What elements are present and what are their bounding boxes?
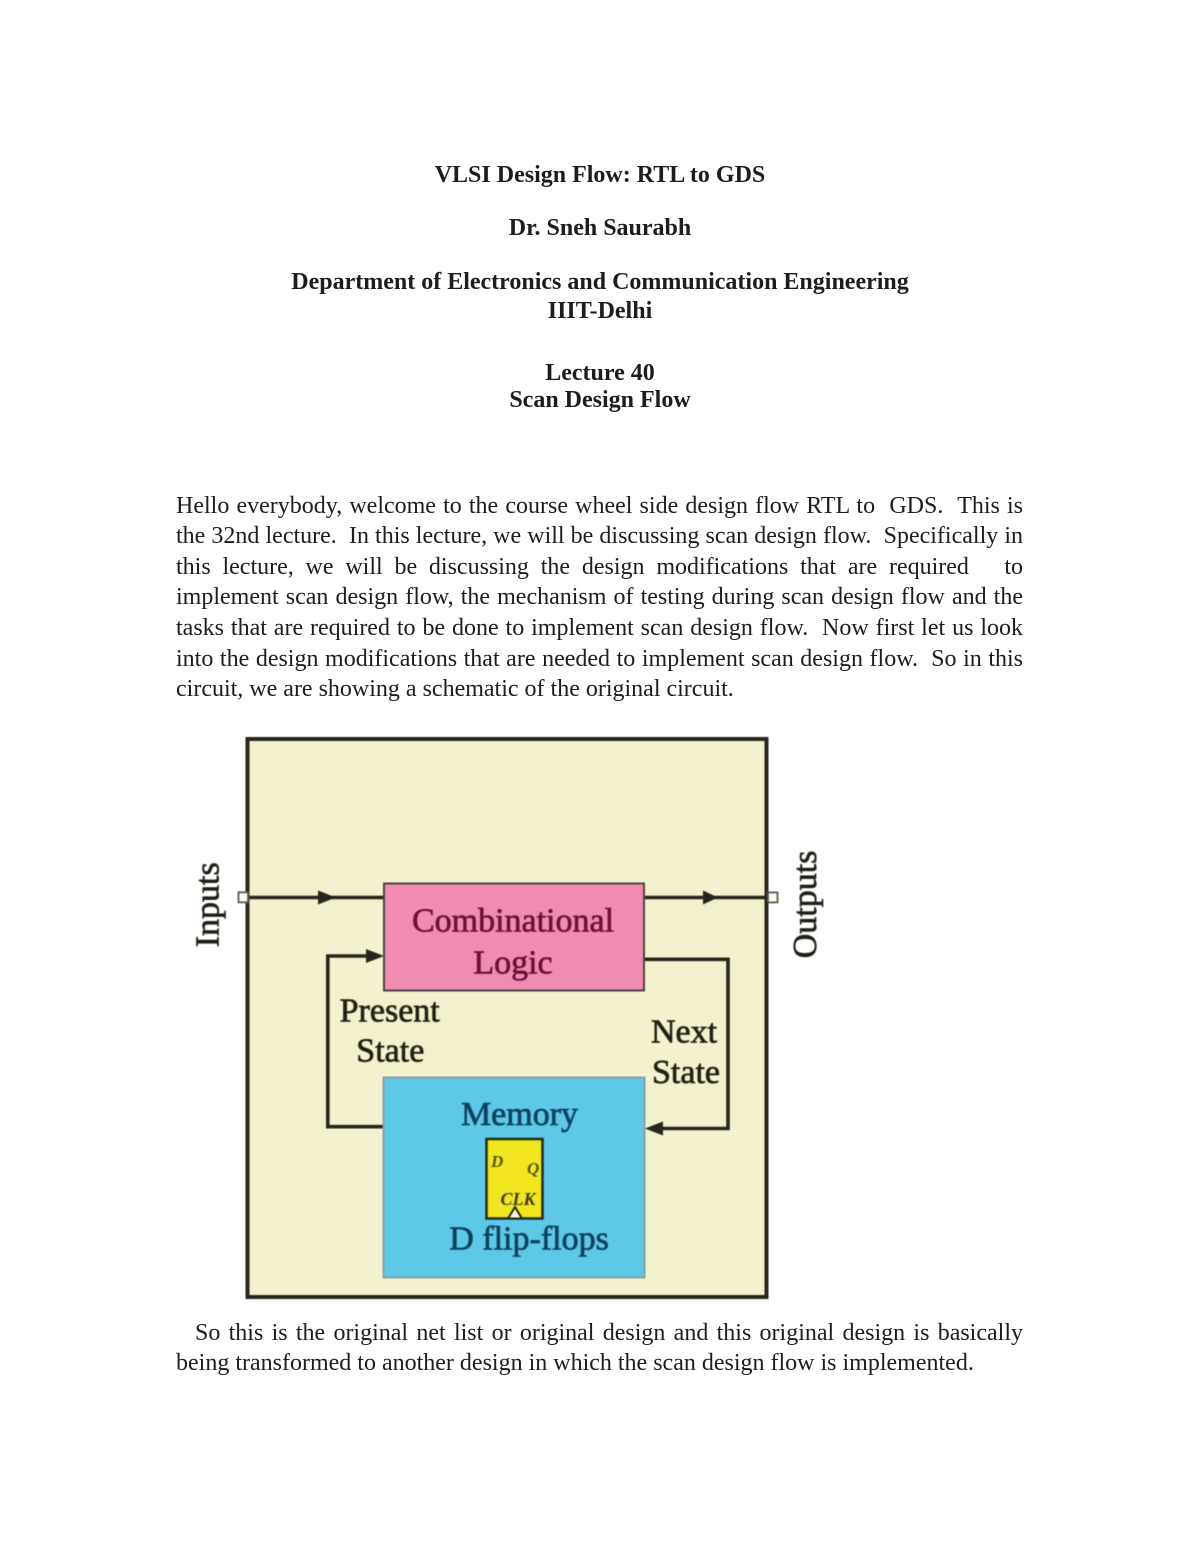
svg-text:Combinational: Combinational: [412, 903, 614, 940]
svg-text:Outputs: Outputs: [787, 851, 824, 959]
svg-text:Logic: Logic: [473, 944, 552, 981]
svg-text:D flip-flops: D flip-flops: [449, 1221, 609, 1258]
svg-text:D: D: [490, 1152, 503, 1171]
svg-text:State: State: [356, 1032, 424, 1069]
svg-text:Next: Next: [651, 1014, 718, 1051]
svg-text:State: State: [652, 1054, 720, 1091]
svg-text:Memory: Memory: [461, 1096, 578, 1133]
svg-text:CLK: CLK: [500, 1189, 537, 1209]
svg-text:Inputs: Inputs: [190, 862, 227, 947]
svg-text:Q: Q: [527, 1159, 539, 1178]
svg-text:Present: Present: [340, 993, 441, 1030]
